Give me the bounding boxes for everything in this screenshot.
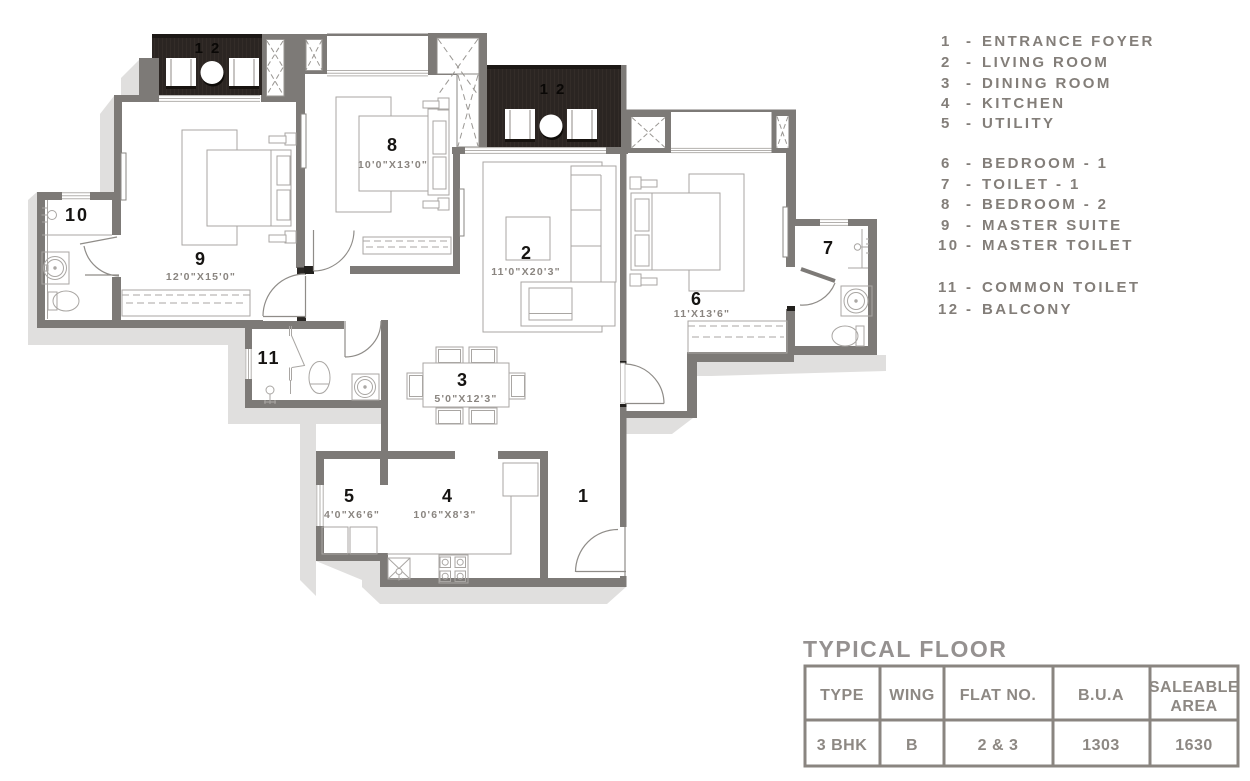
svg-text:10'0"X13'0": 10'0"X13'0" — [358, 159, 428, 171]
svg-text:LIVING ROOM: LIVING ROOM — [982, 54, 1109, 71]
svg-text:1630: 1630 — [1175, 737, 1213, 754]
svg-text:-: - — [966, 196, 973, 213]
svg-text:11: 11 — [938, 279, 959, 296]
svg-text:-: - — [966, 33, 973, 50]
svg-text:2: 2 — [941, 54, 952, 71]
svg-text:2 & 3: 2 & 3 — [978, 737, 1019, 754]
svg-text:6: 6 — [691, 289, 703, 309]
svg-text:5'0"X12'3": 5'0"X12'3" — [434, 393, 497, 405]
svg-text:9: 9 — [941, 217, 952, 234]
svg-text:1: 1 — [578, 486, 590, 506]
svg-text:TYPE: TYPE — [820, 687, 864, 704]
svg-text:8: 8 — [387, 135, 399, 155]
svg-text:MASTER TOILET: MASTER TOILET — [982, 237, 1134, 254]
svg-text:FLAT NO.: FLAT NO. — [960, 687, 1037, 704]
svg-text:1: 1 — [941, 33, 952, 50]
svg-text:1303: 1303 — [1082, 737, 1120, 754]
svg-text:7: 7 — [823, 238, 835, 258]
svg-text:3 BHK: 3 BHK — [817, 737, 868, 754]
svg-text:-: - — [966, 75, 973, 92]
svg-text:B.U.A: B.U.A — [1078, 687, 1124, 704]
svg-text:11'X13'6": 11'X13'6" — [674, 308, 730, 320]
svg-text:DINING ROOM: DINING ROOM — [982, 75, 1112, 92]
svg-text:10: 10 — [65, 205, 89, 225]
svg-text:-: - — [966, 301, 973, 318]
svg-text:6: 6 — [941, 155, 952, 172]
svg-text:MASTER SUITE: MASTER SUITE — [982, 217, 1122, 234]
svg-text:4'0"X6'6": 4'0"X6'6" — [324, 509, 380, 521]
svg-text:WING: WING — [889, 687, 935, 704]
svg-text:9: 9 — [195, 249, 207, 269]
svg-text:-: - — [966, 95, 973, 112]
svg-text:BEDROOM - 2: BEDROOM - 2 — [982, 196, 1108, 213]
svg-text:TOILET - 1: TOILET - 1 — [982, 176, 1081, 193]
svg-text:BALCONY: BALCONY — [982, 301, 1073, 318]
svg-text:ENTRANCE FOYER: ENTRANCE FOYER — [982, 33, 1155, 50]
svg-text:4: 4 — [941, 95, 952, 112]
svg-text:12: 12 — [938, 301, 960, 318]
svg-text:-: - — [966, 115, 973, 132]
svg-text:-: - — [966, 217, 973, 234]
svg-text:KITCHEN: KITCHEN — [982, 95, 1065, 112]
svg-text:12'0"X15'0": 12'0"X15'0" — [166, 271, 236, 283]
svg-text:10'6"X8'3": 10'6"X8'3" — [413, 509, 476, 521]
svg-text:2: 2 — [521, 243, 533, 263]
svg-text:8: 8 — [941, 196, 952, 213]
svg-text:3: 3 — [457, 370, 469, 390]
svg-text:5: 5 — [941, 115, 952, 132]
svg-text:BEDROOM - 1: BEDROOM - 1 — [982, 155, 1108, 172]
svg-text:-: - — [966, 54, 973, 71]
svg-text:-: - — [966, 155, 973, 172]
svg-text:-: - — [966, 237, 973, 254]
svg-text:5: 5 — [344, 486, 356, 506]
svg-text:AREA: AREA — [1170, 698, 1217, 715]
svg-text:COMMON TOILET: COMMON TOILET — [982, 279, 1140, 296]
svg-text:3: 3 — [941, 75, 952, 92]
svg-text:UTILITY: UTILITY — [982, 115, 1055, 132]
svg-text:11: 11 — [257, 348, 280, 368]
svg-text:B: B — [906, 737, 918, 754]
svg-text:10: 10 — [938, 237, 960, 254]
svg-text:-: - — [966, 279, 973, 296]
svg-text:12: 12 — [195, 40, 228, 57]
svg-text:TYPICAL FLOOR: TYPICAL FLOOR — [803, 636, 1007, 662]
svg-text:11'0"X20'3": 11'0"X20'3" — [491, 266, 561, 278]
svg-text:4: 4 — [442, 486, 454, 506]
svg-text:-: - — [966, 176, 973, 193]
svg-text:SALEABLE: SALEABLE — [1149, 679, 1239, 696]
svg-text:12: 12 — [540, 81, 573, 98]
svg-text:7: 7 — [941, 176, 952, 193]
